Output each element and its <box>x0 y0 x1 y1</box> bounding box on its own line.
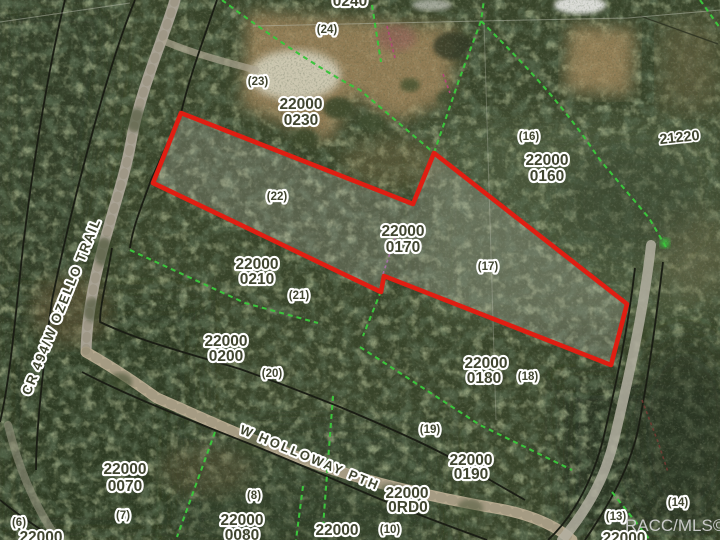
svg-text:0180: 0180 <box>467 370 501 387</box>
svg-text:0200: 0200 <box>209 348 243 365</box>
svg-text:(20): (20) <box>262 368 283 380</box>
svg-text:0070: 0070 <box>108 478 142 495</box>
svg-text:(21): (21) <box>289 290 310 302</box>
svg-text:22000: 22000 <box>103 461 146 478</box>
svg-text:22000: 22000 <box>315 522 358 539</box>
svg-text:22000: 22000 <box>525 152 568 169</box>
svg-text:(6): (6) <box>12 517 26 529</box>
svg-text:0160: 0160 <box>530 168 564 185</box>
svg-text:(18): (18) <box>518 371 539 383</box>
svg-text:(8): (8) <box>247 490 261 502</box>
svg-text:22000: 22000 <box>381 223 424 240</box>
svg-text:(23): (23) <box>248 76 269 88</box>
svg-text:RACC/MLS©: RACC/MLS© <box>625 516 720 535</box>
svg-text:(7): (7) <box>116 510 130 522</box>
svg-text:(22): (22) <box>267 191 288 203</box>
svg-text:22000: 22000 <box>19 529 62 540</box>
svg-text:(16): (16) <box>519 131 540 143</box>
svg-text:(13): (13) <box>606 511 627 523</box>
svg-text:(17): (17) <box>478 261 499 273</box>
svg-text:0RD0: 0RD0 <box>388 499 428 516</box>
svg-text:(14): (14) <box>668 497 689 509</box>
svg-text:(24): (24) <box>317 24 338 36</box>
svg-text:22000: 22000 <box>279 96 322 113</box>
svg-text:0080: 0080 <box>225 527 259 540</box>
svg-text:0210: 0210 <box>240 271 274 288</box>
svg-text:(10): (10) <box>380 524 401 536</box>
svg-text:(19): (19) <box>420 424 441 436</box>
svg-text:0240: 0240 <box>333 0 367 10</box>
svg-text:0230: 0230 <box>284 112 318 129</box>
svg-text:0190: 0190 <box>454 466 488 483</box>
svg-text:0170: 0170 <box>386 239 420 256</box>
